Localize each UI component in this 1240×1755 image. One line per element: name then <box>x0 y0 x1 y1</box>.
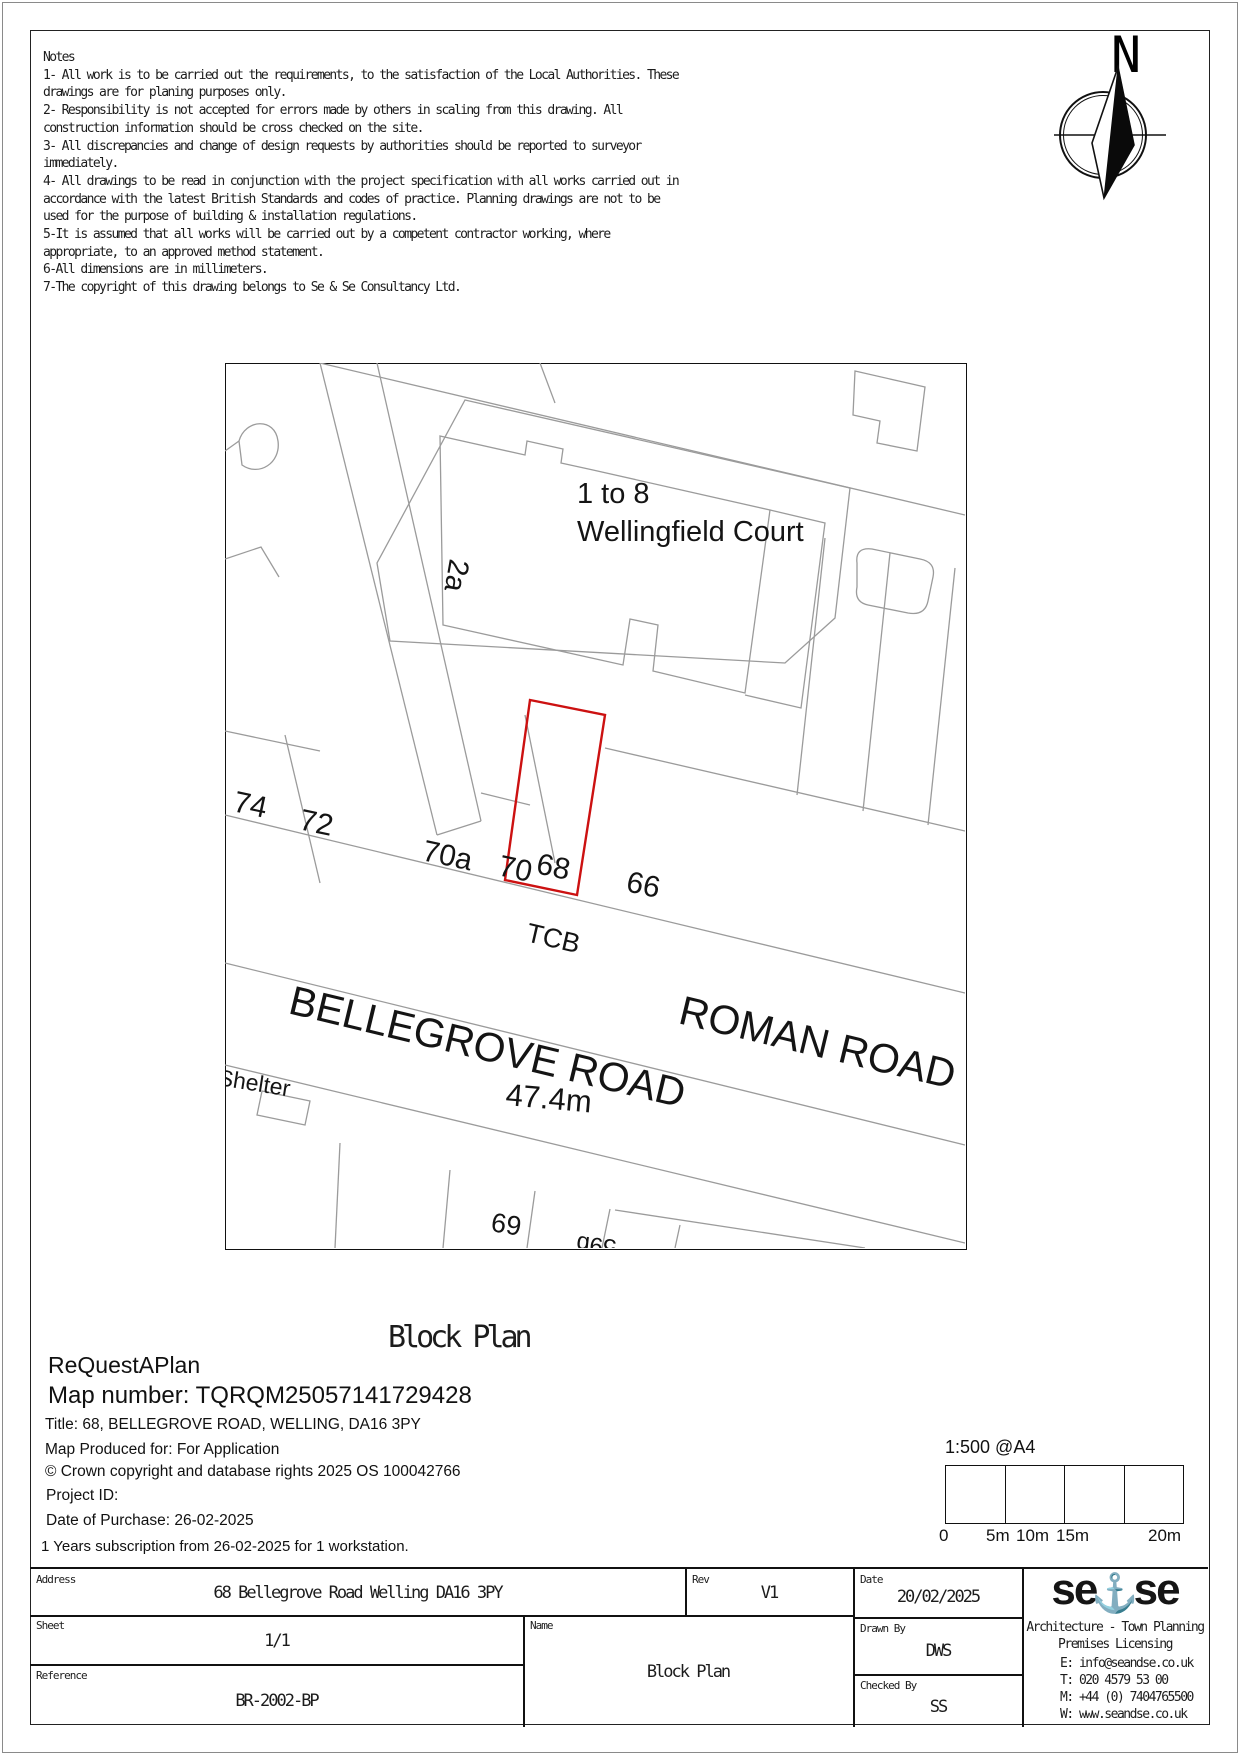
scale-tick-0: 0 <box>939 1526 948 1546</box>
map-title-line: Title: 68, BELLEGROVE ROAD, WELLING, DA1… <box>45 1416 421 1434</box>
plot-69-label: 69 <box>489 1207 523 1241</box>
date-label: Date <box>860 1573 883 1586</box>
date-value: 20/02/2025 <box>853 1587 1023 1607</box>
notes-block: Notes 1- All work is to be carried out t… <box>43 49 678 297</box>
plot-70-label: 70 <box>496 850 536 889</box>
logo-cell: se⚓se Architecture - Town Planning Premi… <box>1022 1569 1208 1727</box>
block-plan-map[interactable]: 1 to 8 Wellingfield Court 2a 74 72 70a 7… <box>225 363 965 1248</box>
notes-line: drawings are for planing purposes only. <box>43 84 678 102</box>
logo-email: E: info@seandse.co.uk <box>1060 1655 1193 1672</box>
building-name-label: Wellingfield Court <box>577 516 804 548</box>
notes-line: 7-The copyright of this drawing belongs … <box>43 279 678 297</box>
notes-line: 3- All discrepancies and change of desig… <box>43 138 678 156</box>
block-plan-page: Notes 1- All work is to be carried out t… <box>0 0 1240 1755</box>
scale-label: 1:500 @A4 <box>945 1437 1035 1458</box>
sheet-value: 1/1 <box>30 1631 523 1651</box>
notes-line: appropriate, to an approved method state… <box>43 244 678 262</box>
plot-72-label: 72 <box>297 804 337 843</box>
north-compass-icon: N <box>1040 20 1180 215</box>
address-value: 68 Bellegrove Road Welling DA16 3PY <box>30 1583 685 1603</box>
drawn-by-value: DWS <box>853 1641 1023 1661</box>
tcb-label: TCB <box>524 918 583 959</box>
logo-tagline-2: Premises Licensing <box>1022 1636 1208 1653</box>
notes-line: construction information should be cross… <box>43 120 678 138</box>
notes-line: 5-It is assumed that all works will be c… <box>43 226 678 244</box>
project-id-line: Project ID: <box>46 1487 118 1505</box>
plot-2a-label: 2a <box>437 557 474 595</box>
road-name-bellegrove: BELLEGROVE ROAD <box>285 977 690 1116</box>
notes-line: 4- All drawings to be read in conjunctio… <box>43 173 678 191</box>
reference-label: Reference <box>36 1669 87 1682</box>
sese-logo: se⚓se <box>1022 1565 1208 1615</box>
logo-phone: T: 020 4579 53 00 <box>1060 1672 1168 1689</box>
logo-se-left: se <box>1051 1565 1096 1614</box>
notes-line: accordance with the latest British Stand… <box>43 191 678 209</box>
checked-by-value: SS <box>853 1697 1023 1717</box>
subscription-line: 1 Years subscription from 26-02-2025 for… <box>41 1538 409 1555</box>
map-number: Map number: TQRQM25057141729428 <box>48 1382 472 1410</box>
checked-by-label: Checked By <box>860 1679 916 1692</box>
rev-value: V1 <box>685 1583 853 1603</box>
anchor-icon: ⚓ <box>1091 1573 1138 1615</box>
scale-tick-10m: 10m <box>1016 1526 1049 1546</box>
logo-tagline-1: Architecture - Town Planning <box>1022 1619 1208 1636</box>
road-width-label: 47.4m <box>504 1077 593 1119</box>
copyright-line: © Crown copyright and database rights 20… <box>45 1463 461 1481</box>
purchase-date-line: Date of Purchase: 26-02-2025 <box>46 1512 254 1530</box>
notes-line: 6-All dimensions are in millimeters. <box>43 261 678 279</box>
notes-line: immediately. <box>43 155 678 173</box>
scale-tick-15m: 15m <box>1056 1526 1089 1546</box>
notes-line: 1- All work is to be carried out the req… <box>43 67 678 85</box>
scale-tick-20m: 20m <box>1148 1526 1181 1546</box>
logo-mobile: M: +44 (0) 7404765500 <box>1060 1689 1193 1706</box>
plan-title: Block Plan <box>388 1320 529 1355</box>
plot-74-label: 74 <box>231 786 271 825</box>
name-label: Name <box>530 1619 553 1632</box>
provider-name: ReQuestAPlan <box>48 1352 200 1379</box>
logo-se-right: se <box>1134 1565 1179 1614</box>
notes-line: 2- Responsibility is not accepted for er… <box>43 102 678 120</box>
road-name-roman: ROMAN ROAD <box>675 987 960 1098</box>
notes-line: Notes <box>43 49 678 67</box>
reference-value: BR-2002-BP <box>30 1691 523 1711</box>
scale-tick-5m: 5m <box>986 1526 1010 1546</box>
produced-for-line: Map Produced for: For Application <box>45 1441 279 1459</box>
logo-web: W: www.seandse.co.uk <box>1060 1706 1187 1723</box>
scale-bar <box>945 1465 1184 1524</box>
plot-59b-label: 59b <box>575 1230 618 1248</box>
plot-66-label: 66 <box>624 866 664 905</box>
building-range-label: 1 to 8 <box>577 478 650 510</box>
plot-70a-label: 70a <box>420 835 476 878</box>
plot-68-label: 68 <box>534 848 574 887</box>
title-block: Address 68 Bellegrove Road Welling DA16 … <box>30 1567 1208 1727</box>
shelter-label: Shelter <box>225 1064 293 1101</box>
notes-line: used for the purpose of building & insta… <box>43 208 678 226</box>
map-labels: 1 to 8 Wellingfield Court 2a 74 72 70a 7… <box>225 478 960 1248</box>
name-value: Block Plan <box>523 1662 853 1682</box>
drawn-by-label: Drawn By <box>860 1622 905 1635</box>
